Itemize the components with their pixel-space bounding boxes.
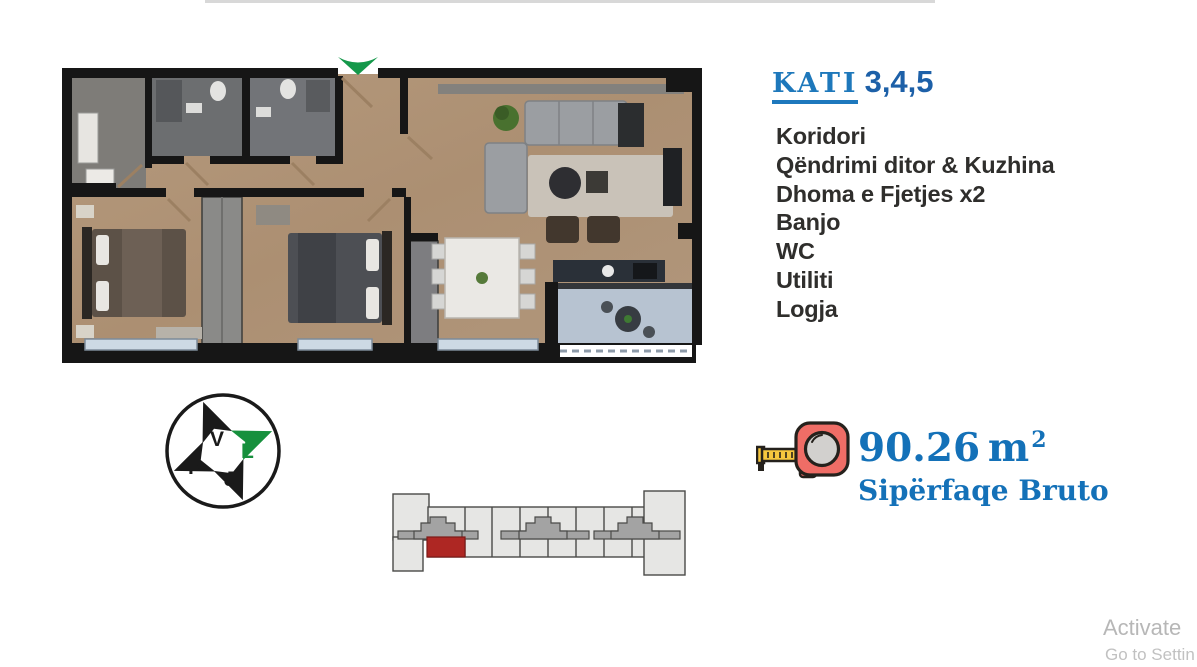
room-list-item: WC xyxy=(776,237,1055,266)
bed-headboard xyxy=(382,231,392,325)
dining-chair xyxy=(520,269,535,284)
side-table xyxy=(586,171,608,193)
window xyxy=(298,339,372,350)
window xyxy=(85,339,197,350)
coffee-table xyxy=(549,167,581,199)
nightstand xyxy=(76,325,94,338)
room-list-item: Dhoma e Fjetjes x2 xyxy=(776,180,1055,209)
bedroom-bench xyxy=(156,327,202,339)
room-list-item: Qëndrimi ditor & Kuzhina xyxy=(776,151,1055,180)
room-list: Koridori Qëndrimi ditor & Kuzhina Dhoma … xyxy=(776,122,1055,324)
armchair xyxy=(587,216,620,243)
pillow xyxy=(96,281,109,311)
floor-title: KATI3,4,5 xyxy=(772,64,934,100)
sink xyxy=(186,103,202,113)
activation-watermark-line1: Activate xyxy=(1103,615,1181,641)
entrance-arrow-icon xyxy=(338,57,378,75)
toilet xyxy=(210,81,226,101)
shower xyxy=(156,80,182,122)
compass-north-label: V xyxy=(210,428,224,451)
wall xyxy=(378,68,702,78)
dresser xyxy=(256,205,290,225)
tape-measure-icon xyxy=(756,420,851,482)
compass-rose: V P J L xyxy=(158,388,288,516)
room-list-item: Koridori xyxy=(776,122,1055,151)
compass-east-label: L xyxy=(241,440,254,463)
toilet xyxy=(280,79,296,99)
washing-machine xyxy=(86,169,114,184)
top-divider-rule xyxy=(205,0,935,3)
window xyxy=(438,339,538,350)
nightstand xyxy=(76,205,94,218)
sofa xyxy=(525,101,627,145)
bed-headboard xyxy=(82,227,92,319)
pillow xyxy=(366,287,379,319)
site-plan xyxy=(388,487,688,579)
kitchen-sink xyxy=(602,265,614,277)
room-list-item: Banjo xyxy=(776,208,1055,237)
room-list-item: Logja xyxy=(776,295,1055,324)
room-list-item: Utiliti xyxy=(776,266,1055,295)
utility-cabinet xyxy=(78,113,98,163)
page: { "page": { "background": "#ffffff", "to… xyxy=(0,0,1197,667)
compass-south-label: J xyxy=(224,468,236,491)
media-cabinet xyxy=(618,103,644,147)
sink xyxy=(256,107,271,117)
pillow xyxy=(96,235,109,265)
sofa-chaise xyxy=(485,143,527,213)
pillow xyxy=(366,239,379,271)
area-exponent: 2 xyxy=(1031,427,1046,453)
area-value: 90.26 m2 xyxy=(858,425,1047,471)
floor-title-numbers: 3,4,5 xyxy=(865,64,934,99)
balcony-chair xyxy=(601,301,613,313)
site-plan-highlighted-unit xyxy=(427,537,465,557)
title-underline xyxy=(772,100,858,104)
dining-chair xyxy=(520,294,535,309)
wall xyxy=(62,68,338,78)
dining-chair xyxy=(520,244,535,259)
cooktop xyxy=(633,263,657,279)
shower xyxy=(306,80,330,112)
compass-west-label: P xyxy=(188,456,202,479)
area-caption: Sipërfaqe Bruto xyxy=(858,474,1109,507)
activation-watermark-line2: Go to Settin xyxy=(1105,645,1195,665)
balcony-chair xyxy=(643,326,655,338)
tv-panel xyxy=(663,148,682,206)
wall xyxy=(62,68,72,353)
armchair xyxy=(546,216,579,243)
wall xyxy=(692,68,702,345)
balcony-glass-wall xyxy=(558,283,692,289)
floor-plan xyxy=(60,55,705,370)
floor-title-label: KATI xyxy=(772,68,859,99)
